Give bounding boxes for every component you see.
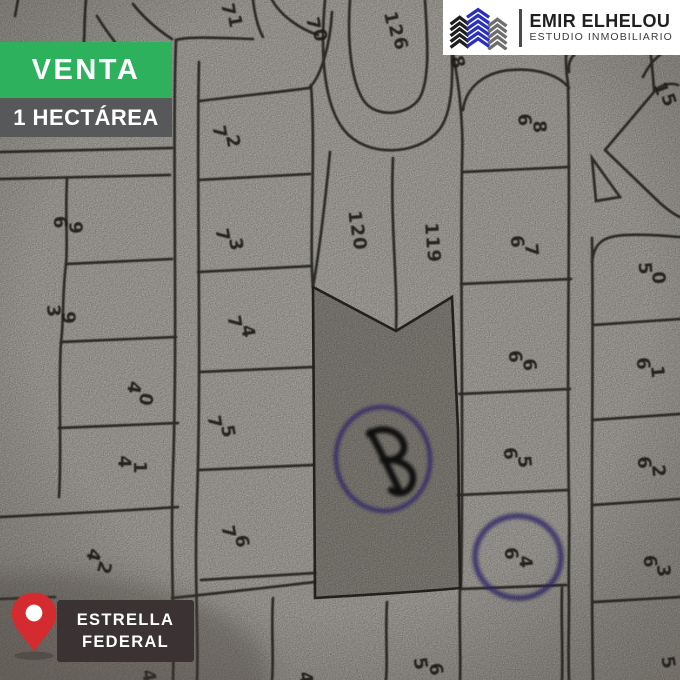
logo-divider bbox=[519, 9, 522, 47]
agency-name: EMIR ELHELOU bbox=[530, 12, 673, 31]
agency-logo: EMIR ELHELOU ESTUDIO INMOBILIARIO bbox=[443, 0, 680, 55]
size-banner: 1 HECTÁREA bbox=[0, 98, 172, 137]
listing-image: 7170126872681569731201196750397466614075… bbox=[0, 0, 680, 680]
location-line2: FEDERAL bbox=[82, 631, 169, 653]
location-badge: ESTRELLA FEDERAL bbox=[57, 600, 194, 662]
agency-subtitle: ESTUDIO INMOBILIARIO bbox=[530, 32, 673, 43]
logo-text: EMIR ELHELOU ESTUDIO INMOBILIARIO bbox=[530, 12, 673, 44]
sale-banner: VENTA bbox=[0, 42, 172, 98]
sale-banner-label: VENTA bbox=[32, 54, 141, 87]
buildings-icon bbox=[449, 6, 511, 50]
map-pin-icon bbox=[8, 590, 60, 662]
location-line1: ESTRELLA bbox=[77, 609, 174, 631]
size-banner-label: 1 HECTÁREA bbox=[13, 105, 159, 131]
